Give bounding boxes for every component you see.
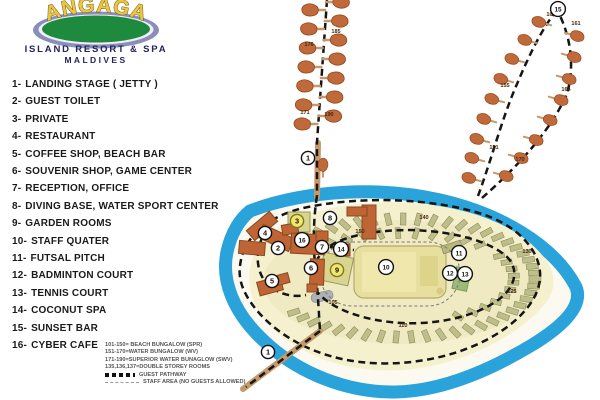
water-bungalow-icon	[476, 112, 499, 127]
water-bungalow-icon	[294, 118, 319, 130]
map-marker-4: 4	[258, 226, 271, 239]
map-marker-10: 10	[379, 260, 394, 275]
map-marker-11: 11	[452, 246, 467, 261]
map-marker-3: 3	[290, 214, 303, 227]
room-number-label: 176	[304, 42, 313, 48]
map-marker-label: 12	[446, 270, 454, 277]
room-number-label: 190	[324, 112, 333, 118]
room-number-label: 150	[355, 229, 364, 235]
beach-bungalow	[400, 213, 406, 225]
beach-bungalow	[526, 263, 538, 270]
room-number-label: 170	[515, 157, 524, 163]
water-bungalow-icon	[321, 53, 346, 65]
map-marker-label: 14	[337, 246, 345, 253]
water-bungalow-icon	[469, 132, 492, 147]
water-bungalow-icon	[464, 151, 487, 166]
map-marker-label: 13	[461, 271, 469, 278]
water-bungalow-icon	[297, 80, 322, 92]
map-marker-label: 2	[276, 244, 280, 253]
room-number-label: 125	[507, 289, 516, 295]
water-bungalow-icon	[554, 71, 577, 86]
map-marker-label: 1	[266, 348, 270, 357]
water-bungalow-icon	[298, 61, 323, 73]
room-number-label: 185	[331, 29, 340, 35]
beach-bungalow	[506, 266, 517, 272]
water-bungalow-icon	[318, 91, 343, 103]
map-marker-9: 9	[330, 263, 343, 276]
map-marker-label: 6	[309, 264, 313, 273]
resort-map-page: 1761851711901511551601611641701501401301…	[0, 0, 600, 400]
room-number-label: 155	[500, 83, 509, 89]
water-bungalow-icon	[484, 92, 507, 107]
map-marker-8: 8	[323, 211, 336, 224]
water-bungalow-icon	[302, 4, 327, 16]
map-marker-label: 11	[456, 250, 463, 257]
water-bungalow-icon	[461, 171, 484, 186]
room-number-label: 130	[522, 249, 531, 255]
water-bungalow-icon	[300, 23, 325, 35]
room-number-label: 140	[419, 215, 428, 221]
map-marker-label: 15	[554, 6, 562, 13]
water-bungalow-icon	[320, 72, 345, 84]
staff-quarter-building	[354, 246, 446, 298]
map-marker-15: 15	[551, 2, 566, 17]
water-bungalow-icon	[504, 52, 527, 67]
room-number-label: 171	[300, 110, 309, 116]
water-bungalow-icon	[324, 15, 349, 27]
water-bungalows	[294, 0, 585, 186]
map-marker-label: 1	[306, 154, 310, 163]
map-marker-5: 5	[265, 274, 278, 287]
water-bungalow-icon	[325, 0, 350, 8]
map-marker-6: 6	[304, 261, 317, 274]
map-marker-12: 12	[443, 266, 458, 281]
map-marker-label: 7	[320, 243, 324, 252]
room-number-label: 105	[328, 300, 337, 306]
map-marker-13: 13	[458, 267, 473, 282]
water-bungalow-icon	[546, 92, 569, 107]
map-marker-label: 8	[328, 214, 332, 223]
map-marker-2: 2	[271, 241, 284, 254]
map-marker-7: 7	[315, 240, 328, 253]
map-marker-1: 1	[301, 151, 314, 164]
beach-bungalow	[393, 331, 400, 343]
map-marker-1: 1	[261, 345, 274, 358]
water-bungalow-icon	[535, 112, 558, 127]
room-number-label: 151	[489, 145, 498, 151]
map-marker-label: 9	[335, 266, 339, 275]
island-map: 1761851711901511551601611641701501401301…	[0, 0, 600, 400]
map-marker-14: 14	[334, 242, 349, 257]
room-number-label: 164	[561, 87, 571, 93]
map-marker-label: 5	[270, 277, 274, 286]
map-marker-16: 16	[295, 233, 310, 248]
map-marker-label: 16	[298, 237, 306, 244]
water-bungalow-icon	[322, 34, 347, 46]
map-marker-label: 10	[382, 264, 390, 271]
room-number-label: 161	[571, 21, 580, 27]
map-marker-label: 3	[295, 217, 299, 226]
room-number-label: 110	[398, 323, 407, 329]
